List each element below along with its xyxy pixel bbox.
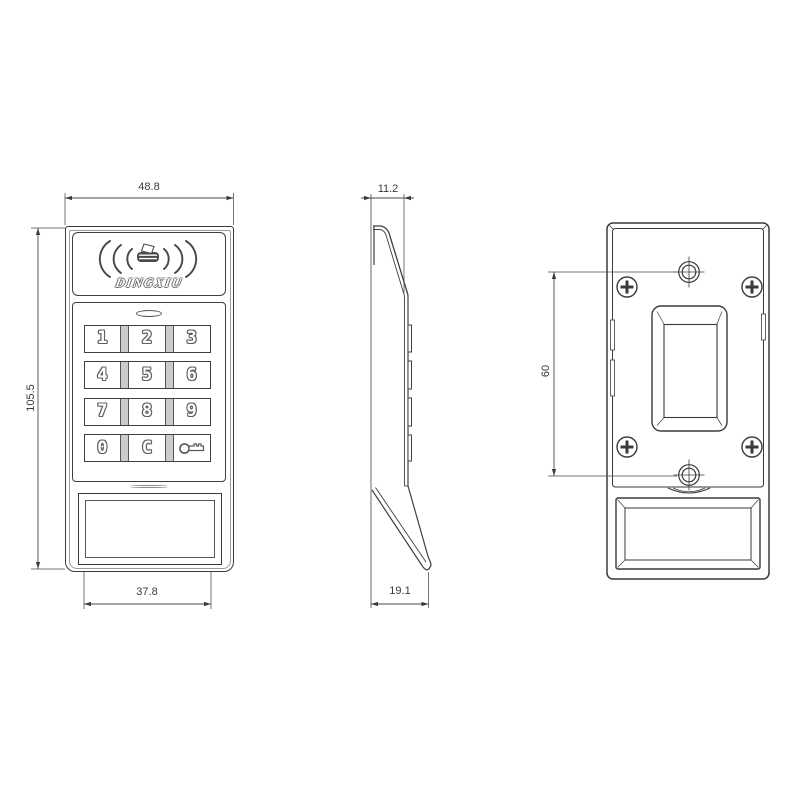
rear-mounting-plate xyxy=(613,229,764,488)
dim-front-width-label: 48.8 xyxy=(129,181,169,193)
side-clips xyxy=(611,314,766,396)
dim-depth-bottom-label: 19.1 xyxy=(380,585,420,597)
rear-cable-window xyxy=(616,498,760,569)
phillips-screw xyxy=(617,437,637,457)
technical-drawing-canvas: DINGXIU 1 2 3 4 5 6 7 8 9 0 C xyxy=(0,0,800,800)
phillips-screw xyxy=(742,277,762,297)
front-view-dimension-lines xyxy=(20,180,300,620)
mount-screw-crosshair xyxy=(674,257,705,288)
dim-mount-spacing-label: 60 xyxy=(540,351,552,391)
dim-depth-top-label: 11.2 xyxy=(368,183,408,195)
phillips-screw xyxy=(742,437,762,457)
side-view xyxy=(340,180,480,620)
rear-battery-opening xyxy=(652,306,727,431)
dim-front-height-label: 105.5 xyxy=(25,376,37,420)
rear-view xyxy=(540,210,780,590)
rear-body-outline xyxy=(607,223,769,579)
phillips-screw xyxy=(617,277,637,297)
mount-screw-crosshair xyxy=(674,460,705,491)
dim-window-width-label: 37.8 xyxy=(127,586,167,598)
